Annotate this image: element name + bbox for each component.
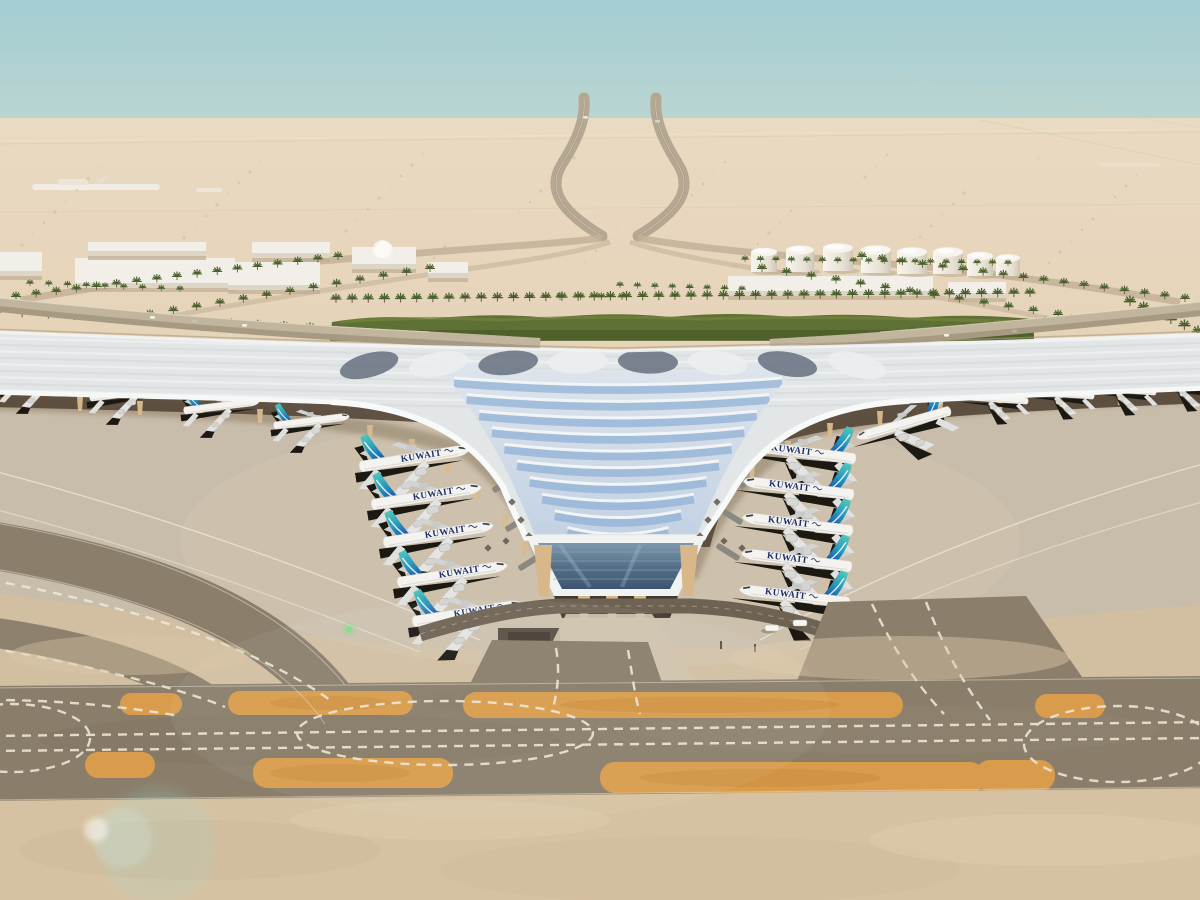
- tree-column: [77, 397, 83, 411]
- scrub-dot: [886, 154, 888, 156]
- tree-column: [137, 401, 143, 415]
- car: [150, 316, 155, 319]
- scrub-dot: [779, 221, 781, 223]
- scrub-dot: [701, 182, 704, 185]
- scrub-dot: [53, 210, 56, 213]
- white-building: [428, 262, 468, 282]
- scrub-dot: [941, 214, 943, 216]
- white-building: [228, 262, 320, 294]
- scrub-dot: [724, 161, 726, 163]
- scrub-dot: [410, 163, 413, 166]
- scrub-dot: [422, 153, 424, 155]
- scrub-dot: [529, 201, 531, 203]
- scrub-dot: [1124, 184, 1127, 187]
- scrub-dot: [43, 222, 45, 224]
- scrub-dot: [344, 229, 347, 232]
- tree-column: [445, 459, 451, 473]
- scrub-dot: [205, 215, 207, 217]
- scrub-dot: [356, 219, 358, 221]
- car: [655, 120, 660, 123]
- scrub-dot: [875, 165, 877, 167]
- car: [1012, 330, 1017, 333]
- scrub-dot: [227, 193, 229, 195]
- tree-column: [521, 541, 527, 555]
- scrub-dot: [377, 196, 380, 199]
- scrub-dot: [86, 177, 89, 180]
- scrub-dot: [32, 233, 34, 235]
- scrub-dot: [1070, 240, 1072, 242]
- scrub-dot: [433, 257, 435, 259]
- scrub-dot: [518, 212, 520, 214]
- scrub-dot: [1048, 262, 1050, 264]
- car: [242, 324, 247, 327]
- scrub-dot: [929, 224, 932, 227]
- scrub-dot: [182, 236, 185, 239]
- scrub-dot: [757, 243, 759, 245]
- scrub-dot: [595, 250, 597, 252]
- scrub-dot: [790, 210, 792, 212]
- scrub-dot: [691, 194, 693, 196]
- scrub-dot: [76, 189, 78, 191]
- white-building: [0, 252, 42, 280]
- tree-column: [257, 409, 263, 423]
- scrub-dot: [617, 228, 619, 230]
- scrub-dot: [584, 261, 586, 263]
- tree-column: [827, 423, 833, 437]
- scene-canvas: KUWAITKUWAITKUWAITKUWAITKUWAITKUWAITKUWA…: [0, 0, 1200, 900]
- scrub-dot: [962, 191, 965, 194]
- scrub-dot: [1058, 250, 1061, 253]
- white-building: [728, 276, 933, 300]
- scrub-dot: [863, 175, 866, 178]
- scrub-dot: [215, 203, 218, 206]
- scrub-dot: [539, 189, 542, 192]
- scrub-dot: [1081, 229, 1083, 231]
- scrub-dot: [98, 167, 100, 169]
- scrub-dot: [767, 231, 770, 234]
- scrub-dot: [65, 200, 67, 202]
- tree-column: [877, 411, 883, 425]
- white-building: [88, 242, 206, 260]
- scrub-dot: [367, 208, 369, 210]
- scrub-dot: [389, 186, 391, 188]
- scrub-dot: [20, 243, 23, 246]
- scrub-dot: [713, 172, 715, 174]
- scrub-dot: [1114, 196, 1116, 198]
- scrub-dot: [919, 236, 921, 238]
- car: [944, 334, 949, 337]
- scrub-dot: [572, 156, 575, 159]
- car: [583, 116, 588, 119]
- scrub-dot: [1136, 174, 1138, 176]
- airport-aerial-rendering: KUWAITKUWAITKUWAITKUWAITKUWAITKUWAITKUWA…: [0, 0, 1200, 900]
- scrub-dot: [1037, 158, 1039, 160]
- scrub-dot: [952, 203, 954, 205]
- scrub-dot: [238, 182, 240, 184]
- scrub-dot: [1103, 207, 1105, 209]
- car: [192, 320, 197, 323]
- scrub-dot: [194, 226, 196, 228]
- scrub-dot: [400, 175, 402, 177]
- scrub-dot: [248, 170, 251, 173]
- scrub-dot: [1091, 217, 1094, 220]
- scrub-dot: [260, 160, 262, 162]
